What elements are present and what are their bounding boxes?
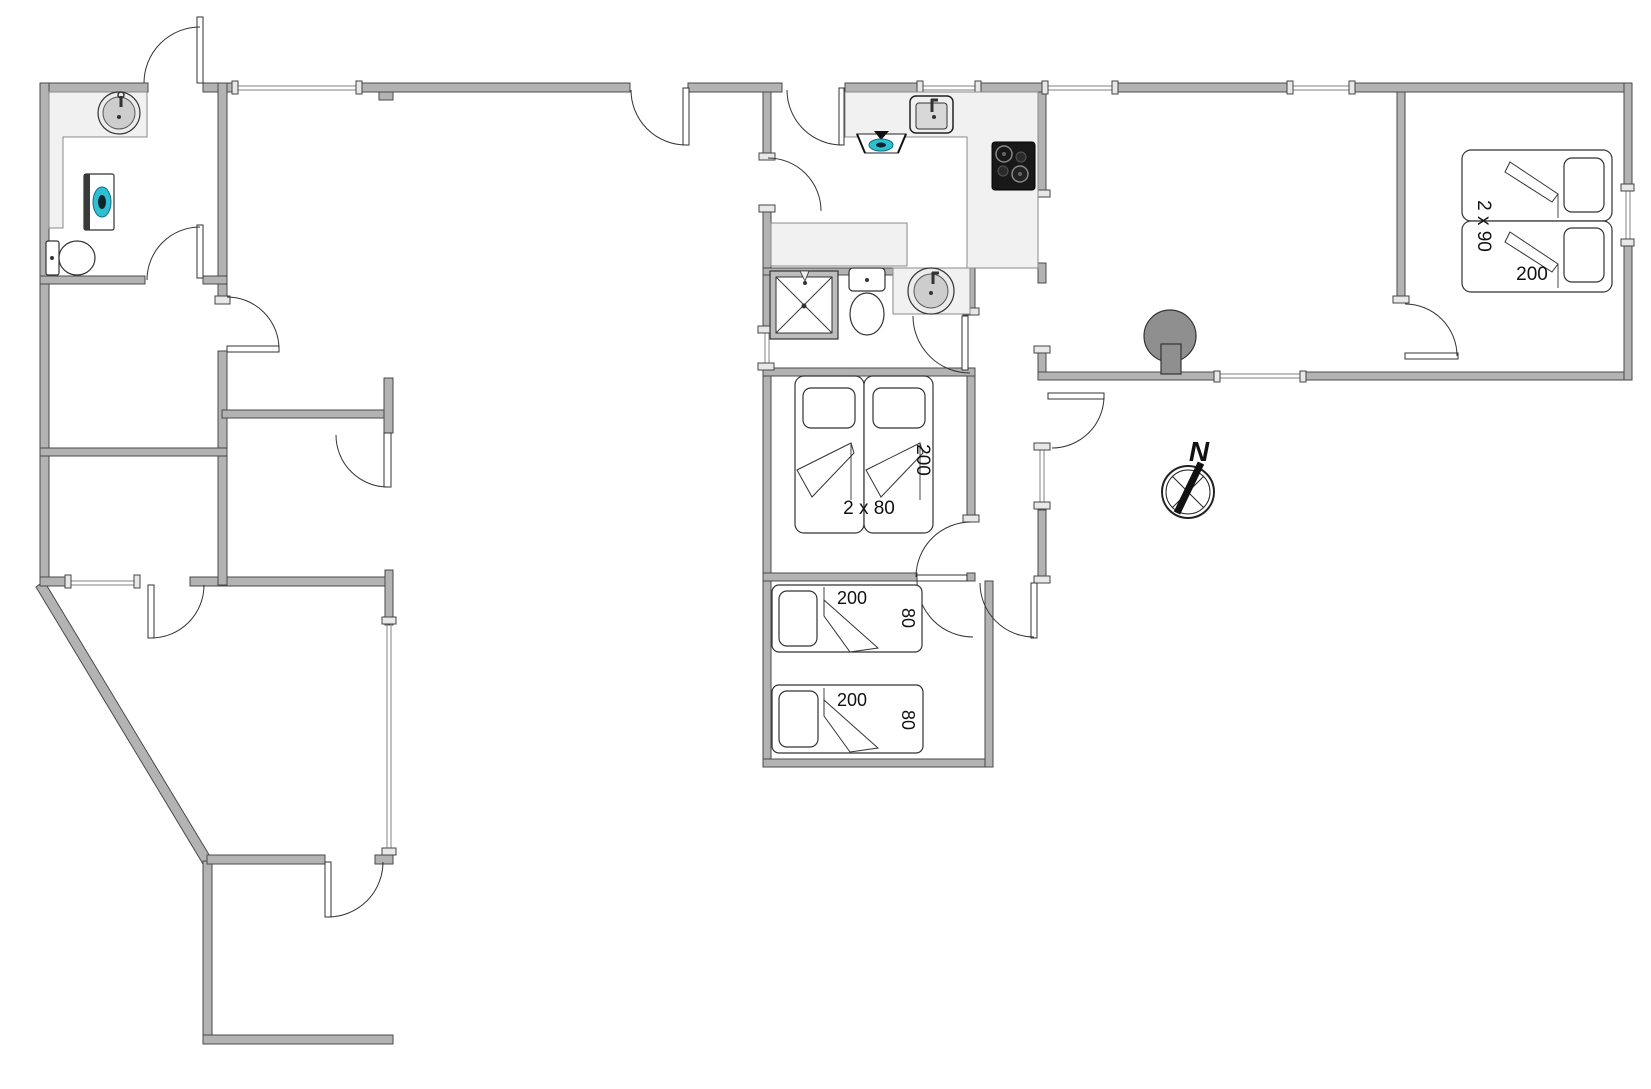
middle-bedroom: 2 x 80 200 [795,376,933,533]
lower-left-room-door-icon [148,585,204,638]
left-room-door-icon [227,297,279,352]
washing-machine-icon [84,174,114,230]
bed-length-label: 200 [1516,264,1548,285]
compass-north-label: N [1189,436,1210,467]
bathroom-topleft [46,92,147,275]
bed-length-label: 200 [912,444,933,476]
floor-plan: 2 x 80 200 200 80 200 80 [0,0,1651,1089]
compass-icon: N [1162,436,1214,518]
terrace-door-icon [325,862,383,917]
middle-bathroom-door-icon [913,316,970,373]
kitchen-sink-icon [910,96,953,133]
bed-width-label: 80 [898,710,918,730]
extractor-hood-icon [857,131,906,153]
right-bedroom: 2 x 90 200 [1462,150,1612,292]
bathroom-middle [770,268,970,339]
single-bed-room: 200 80 200 80 [772,585,923,753]
hall-door-icon [336,433,391,487]
kitchen-top-door-icon [787,88,844,145]
wood-stove-icon [1144,310,1196,374]
round-sink-icon [893,268,970,314]
bed-width-label: 2 x 80 [843,498,895,519]
floor-plan-drawing: 2 x 80 200 200 80 200 80 [0,0,1651,1089]
right-bedroom-door-icon [1405,304,1458,359]
round-sink-icon [98,92,140,134]
bathroom-topleft-door-icon [147,225,203,280]
bed-width-label: 80 [898,608,918,628]
entrance-door-icon [144,17,203,83]
kitchen-island [771,223,907,266]
toilet-icon [46,241,95,275]
shower-icon [770,271,838,339]
living-room-right: N [1144,310,1214,518]
stove-cooktop-icon [992,142,1035,190]
bed-width-label: 2 x 90 [1473,200,1494,252]
toilet-icon [849,268,885,335]
living-room-top-door-icon [631,88,689,145]
kitchen-side-door-icon [768,158,821,211]
bed-length-label: 200 [837,588,867,608]
single-room-door-icon [917,575,973,637]
south-terrace-door-icon [1048,393,1104,448]
bed-length-label: 200 [837,690,867,710]
